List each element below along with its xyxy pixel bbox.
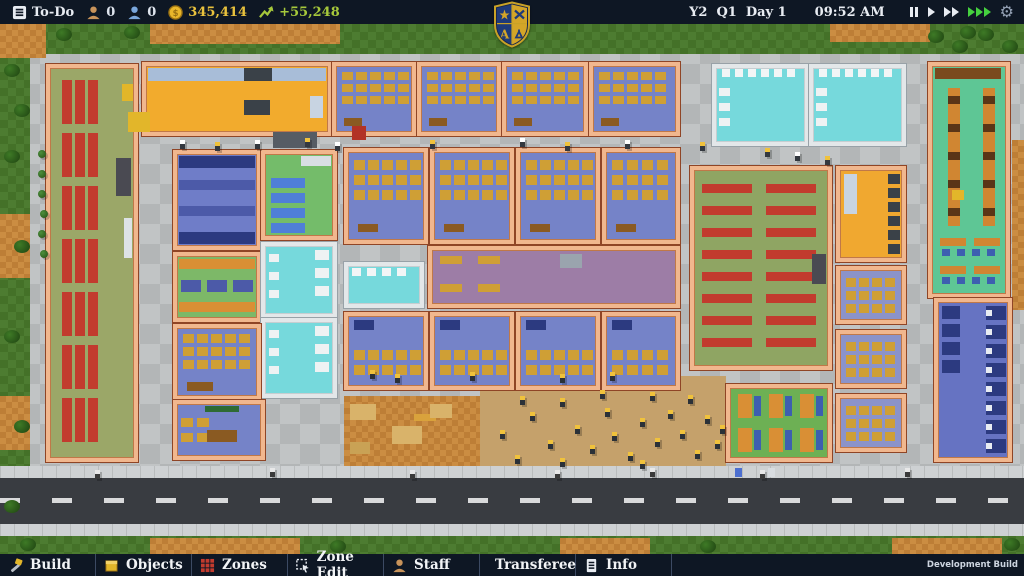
room-dormitory[interactable] [934,298,1012,462]
person[interactable] [270,468,275,477]
furniture [722,69,730,77]
furniture [183,360,194,369]
furniture [702,316,752,325]
room-computer-lab[interactable] [726,384,832,462]
prop-trash-bin-white[interactable] [768,468,775,477]
person[interactable] [760,470,765,479]
furniture [398,96,409,104]
furniture [940,238,966,246]
furniture [872,304,882,313]
person[interactable] [95,470,100,479]
room-classroom-top-3[interactable] [502,62,588,136]
furniture [124,218,132,258]
person[interactable] [410,470,415,479]
furniture [738,428,752,452]
room-assembly-hall[interactable] [690,166,832,370]
person-head [560,458,565,462]
furniture [315,362,329,372]
furniture [940,266,966,274]
furniture [627,365,638,375]
prop-material-crate-4[interactable] [430,404,452,418]
money-display[interactable]: 345,414 [168,5,247,20]
person[interactable] [605,408,610,417]
tree-icon [952,40,968,53]
furniture [271,223,305,233]
person[interactable] [575,425,580,434]
furniture [787,69,795,77]
prop-trash-bin-blue[interactable] [735,468,742,477]
person-head [612,432,617,436]
person[interactable] [640,418,645,427]
furniture [601,118,619,126]
room-classroom-east-3[interactable] [836,394,906,452]
gridcur-icon [296,558,310,573]
furniture [702,338,752,347]
furniture [554,350,565,360]
person[interactable] [500,430,505,439]
person[interactable] [590,445,595,454]
furniture [942,249,950,256]
room-classroom-south-1[interactable] [344,312,428,390]
furniture [872,419,882,428]
person[interactable] [765,148,770,157]
menu-item-objects[interactable]: Objects [96,554,192,576]
furniture [816,103,827,111]
tree-icon [1002,40,1018,53]
furniture [957,249,965,256]
furniture [986,329,992,335]
person[interactable] [215,142,220,151]
person-head [640,418,645,422]
furniture [183,334,194,343]
tree-icon [14,420,30,433]
hammer-icon [8,558,23,573]
furniture [354,160,365,170]
person[interactable] [650,392,655,401]
prop-crate-stack[interactable] [128,112,150,132]
menu-item-label: Zones [222,557,267,573]
person-head [395,374,400,378]
furniture [483,84,494,92]
room-classroom-mid-1[interactable] [344,148,428,244]
furniture [554,160,565,170]
person[interactable] [548,440,553,449]
staff-count: 0 [106,5,115,20]
furniture [845,69,853,77]
furniture [859,291,869,300]
prop-locker-bank[interactable] [273,132,317,148]
person-head [760,470,765,474]
person[interactable] [255,140,260,149]
furniture [396,160,407,170]
person-head [705,415,710,419]
room-bathroom-central[interactable] [344,262,424,308]
person[interactable] [560,374,565,383]
prop-material-crate-2[interactable] [392,426,422,444]
furniture [872,342,882,351]
furniture [183,347,194,356]
person[interactable] [700,142,705,151]
furniture [819,69,827,77]
room-classroom-west-1[interactable] [173,324,261,400]
furniture [62,133,72,177]
person[interactable] [560,398,565,407]
student-counter[interactable]: 0 [127,5,156,20]
person-head [600,390,605,394]
person[interactable] [680,430,685,439]
furniture [642,365,653,375]
furniture [871,69,879,77]
plant-icon [40,210,48,218]
furniture [766,272,816,281]
furniture [885,291,895,300]
furniture [354,365,365,375]
furniture [526,365,537,375]
menu-item-zone-edit[interactable]: Zone Edit [288,554,384,576]
furniture [888,216,900,226]
furniture [75,80,85,124]
furniture [88,345,98,389]
student-figure-icon [127,5,142,20]
tree-icon [1004,538,1020,551]
person-head [720,425,725,429]
furniture [702,206,752,215]
furniture [526,84,537,92]
furniture [526,175,537,185]
person[interactable] [430,140,435,149]
staff-figure-icon [86,5,101,20]
furniture [496,350,507,360]
furniture [766,294,816,303]
furniture [888,244,900,254]
person[interactable] [530,412,535,421]
furniture [627,72,638,80]
play-button[interactable] [928,7,935,17]
furniture [197,347,208,356]
furniture [225,334,236,343]
furniture [469,96,480,104]
person[interactable] [625,140,630,149]
furniture [766,228,816,237]
todo-list-icon [12,5,27,20]
menu-item-build[interactable]: Build [0,554,96,576]
room-hall[interactable] [428,246,680,308]
person[interactable] [668,410,673,419]
person-head [905,468,910,472]
furniture [496,365,507,375]
room-kitchen[interactable] [142,62,332,136]
furniture [211,360,222,369]
furniture [342,72,353,80]
room-bathroom-north-1[interactable] [712,64,809,146]
room-library[interactable] [928,62,1010,298]
furniture [356,84,367,92]
person[interactable] [560,458,565,467]
furniture [972,249,980,256]
person[interactable] [610,372,615,381]
menu-item-zones[interactable]: Zones [192,554,288,576]
room-bathroom-west-2[interactable] [261,318,337,398]
tree-icon [14,240,30,253]
furniture [859,278,869,287]
person[interactable] [395,374,400,383]
person[interactable] [305,138,310,147]
furniture [986,443,992,449]
furniture [440,175,451,185]
furniture [88,292,98,336]
room-auditorium[interactable] [46,64,138,462]
person[interactable] [335,142,340,151]
room-classroom-top-2[interactable] [417,62,501,136]
furniture [526,190,537,200]
furniture [382,268,391,276]
furniture [568,84,579,92]
furniture [440,256,462,264]
furniture [148,68,326,81]
tree-icon [14,104,30,117]
person[interactable] [795,152,800,161]
furniture [935,68,1001,79]
furniture [986,348,992,354]
person-head [500,430,505,434]
person[interactable] [600,390,605,399]
furniture [271,193,305,203]
room-classroom-west-2[interactable] [173,400,265,460]
pause-button[interactable] [909,7,919,17]
furniture [482,365,493,375]
room-classroom-top-1[interactable] [332,62,416,136]
menu-item-info[interactable]: Info [576,554,672,576]
furniture [846,419,856,428]
furniture [948,180,960,188]
furniture [469,84,480,92]
staff-counter[interactable]: 0 [86,5,115,20]
furniture [207,280,227,292]
room-bathroom-north-2[interactable] [809,64,906,146]
person[interactable] [715,440,720,449]
furniture [368,190,379,200]
furniture [454,160,465,170]
person-head [700,142,705,146]
furniture [62,292,72,336]
furniture [612,160,623,170]
furniture [540,72,551,80]
menu-item-staff[interactable]: Staff [384,554,480,576]
person-head [695,450,700,454]
furniture [627,96,638,104]
room-classroom-mid-2[interactable] [430,148,514,244]
person-head [650,392,655,396]
furniture [858,69,866,77]
person[interactable] [612,432,617,441]
furniture [454,175,465,185]
person[interactable] [650,468,655,477]
person[interactable] [565,142,570,151]
settings-gear-icon[interactable]: ⚙ [1000,4,1014,20]
furniture [244,100,270,115]
furniture [846,406,856,415]
tree-icon [4,150,20,163]
furniture [370,72,381,80]
furniture [526,320,546,330]
furniture [354,320,374,330]
room-classroom-top-4[interactable] [589,62,680,136]
furniture [812,254,826,284]
room-classroom-east-2[interactable] [836,330,906,388]
person[interactable] [628,452,633,461]
furniture [514,118,532,126]
furniture [859,368,869,377]
furniture [427,84,438,92]
person-head [680,430,685,434]
room-classroom-mid-3[interactable] [516,148,600,244]
furniture [271,178,305,188]
person[interactable] [720,425,725,434]
furniture [88,398,98,442]
person-head [305,138,310,142]
furniture [884,69,892,77]
prop-material-crate-3[interactable] [350,442,370,454]
prop-material-crate-1[interactable] [350,404,376,420]
furniture [356,96,367,104]
furniture [766,184,816,193]
person[interactable] [515,455,520,464]
person[interactable] [470,372,475,381]
todo-menu[interactable]: To-Do [12,5,74,20]
person[interactable] [688,395,693,404]
person[interactable] [695,450,700,459]
furniture [382,365,393,375]
furniture [816,396,823,416]
room-classroom-south-3[interactable] [516,312,600,390]
money-value: 345,414 [188,5,247,20]
dirt-top-right [830,24,930,42]
prop-vending-machine[interactable] [352,126,366,140]
person-head [335,142,340,146]
furniture [410,160,421,170]
furniture [469,72,480,80]
room-cafeteria-serving[interactable] [173,252,261,322]
person-head [430,140,435,144]
furniture [735,69,743,77]
furniture [440,350,451,360]
furniture [441,96,452,104]
furniture [885,368,895,377]
room-bathroom-west-1[interactable] [261,242,337,318]
furniture [738,394,752,418]
plant-icon [38,170,46,178]
furniture [269,330,279,338]
person[interactable] [705,415,710,424]
room-classroom-east-1[interactable] [836,266,906,324]
furniture [315,326,329,336]
furniture [455,96,466,104]
furniture [942,342,960,355]
furniture [75,186,85,230]
furniture [478,256,500,264]
furniture [384,72,395,80]
furniture [872,355,882,364]
furniture [859,432,869,441]
room-locker-room[interactable] [173,150,261,250]
furniture [554,72,565,80]
furniture [207,430,237,442]
furniture [974,266,1000,274]
person[interactable] [520,138,525,147]
furniture [382,175,393,185]
room-classroom-mid-4[interactable] [602,148,680,244]
furniture [354,175,365,185]
furniture [269,366,279,374]
furniture [642,190,653,200]
person-head [590,445,595,449]
room-storage-room[interactable] [836,166,906,262]
furniture [766,250,816,259]
furniture [800,428,814,452]
furniture [657,175,668,185]
bottom-menu-bar: BuildObjectsZonesZone EditStaffTransfere… [0,554,1024,576]
person-head [560,374,565,378]
person[interactable] [905,468,910,477]
road-dash-line [0,498,1024,503]
furniture [179,156,255,168]
furniture [496,175,507,185]
development-build-label: Development Build [927,560,1018,570]
date-year: Y2 [689,5,707,20]
person[interactable] [555,470,560,479]
person[interactable] [640,460,645,469]
furniture [356,72,367,80]
furniture [540,175,551,185]
person[interactable] [520,396,525,405]
furniture [655,72,666,80]
menu-item-transferee[interactable]: Transferee [480,554,576,576]
person[interactable] [825,156,830,165]
furniture [526,160,537,170]
furniture [642,350,653,360]
person[interactable] [370,370,375,379]
furniture [859,304,869,313]
fastest-speed-button[interactable] [968,7,991,17]
furniture [582,160,593,170]
furniture [657,160,668,170]
room-infirmary[interactable] [261,150,337,240]
furniture [766,338,816,347]
prop-bench-yellow[interactable] [952,190,964,200]
person[interactable] [655,438,660,447]
fast-forward-button[interactable] [944,7,959,17]
furniture [599,96,610,104]
person-head [180,140,185,144]
tree-icon [700,540,716,553]
campus-map[interactable] [0,24,1024,554]
menu-item-label: Build [30,557,71,573]
furniture [986,367,992,373]
furniture [444,224,464,232]
furniture [410,350,421,360]
furniture [888,188,900,198]
furniture [197,418,209,427]
furniture [358,224,378,232]
furniture [62,345,72,389]
furniture [75,239,85,283]
furniture [888,174,900,184]
game-screen: To-Do 0 0 345,414 +55,248 Y2 Q1 Day 1 09… [0,0,1024,576]
furniture [496,160,507,170]
income-display[interactable]: +55,248 [259,5,340,20]
person[interactable] [180,140,185,149]
furniture [769,394,783,418]
